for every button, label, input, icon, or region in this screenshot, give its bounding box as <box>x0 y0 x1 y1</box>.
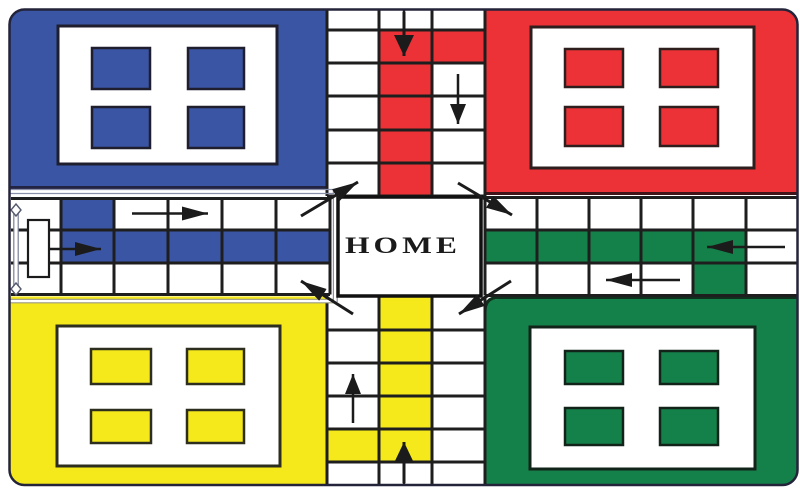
svg-text:HOME: HOME <box>345 233 461 259</box>
